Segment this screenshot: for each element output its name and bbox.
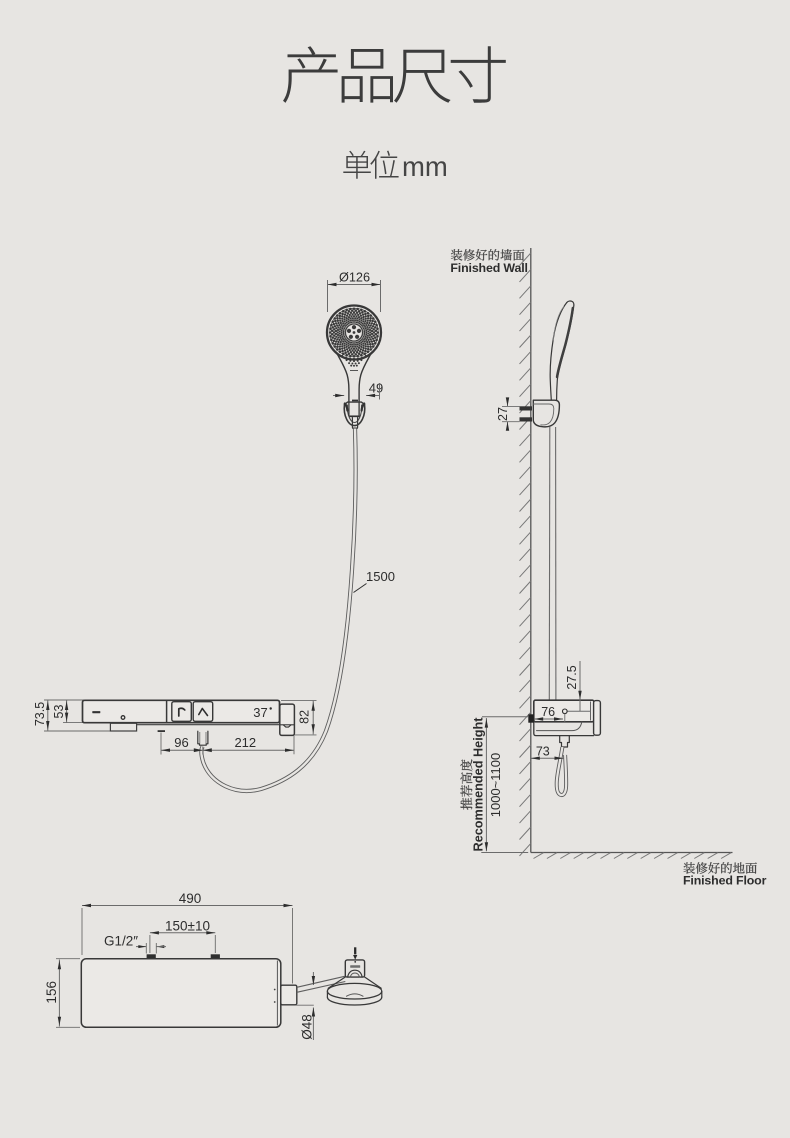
svg-text:mm: mm <box>402 151 448 182</box>
svg-text:Ø126: Ø126 <box>339 271 370 285</box>
svg-text:73.5: 73.5 <box>33 702 47 726</box>
svg-text:490: 490 <box>179 891 202 906</box>
svg-text:212: 212 <box>234 735 256 750</box>
svg-text:27: 27 <box>496 407 510 421</box>
svg-text:27.5: 27.5 <box>565 665 579 689</box>
svg-text:96: 96 <box>174 735 188 750</box>
svg-text:49: 49 <box>369 381 383 396</box>
svg-text:Recommended Height: Recommended Height <box>472 717 486 852</box>
svg-text:37: 37 <box>253 705 267 720</box>
svg-text:Finished Wall: Finished Wall <box>450 261 527 275</box>
svg-text:1500: 1500 <box>366 569 395 584</box>
svg-text:156: 156 <box>44 981 59 1004</box>
svg-text:Finished Floor: Finished Floor <box>683 874 767 888</box>
svg-text:82: 82 <box>297 710 311 724</box>
svg-text:G1/2″: G1/2″ <box>104 933 138 948</box>
svg-text:76: 76 <box>541 705 555 719</box>
svg-text:53: 53 <box>52 705 66 719</box>
svg-text:73: 73 <box>536 744 550 758</box>
svg-text:Ø48: Ø48 <box>299 1014 314 1040</box>
svg-text:150±10: 150±10 <box>165 918 210 933</box>
svg-text:1000~1100: 1000~1100 <box>488 753 503 817</box>
